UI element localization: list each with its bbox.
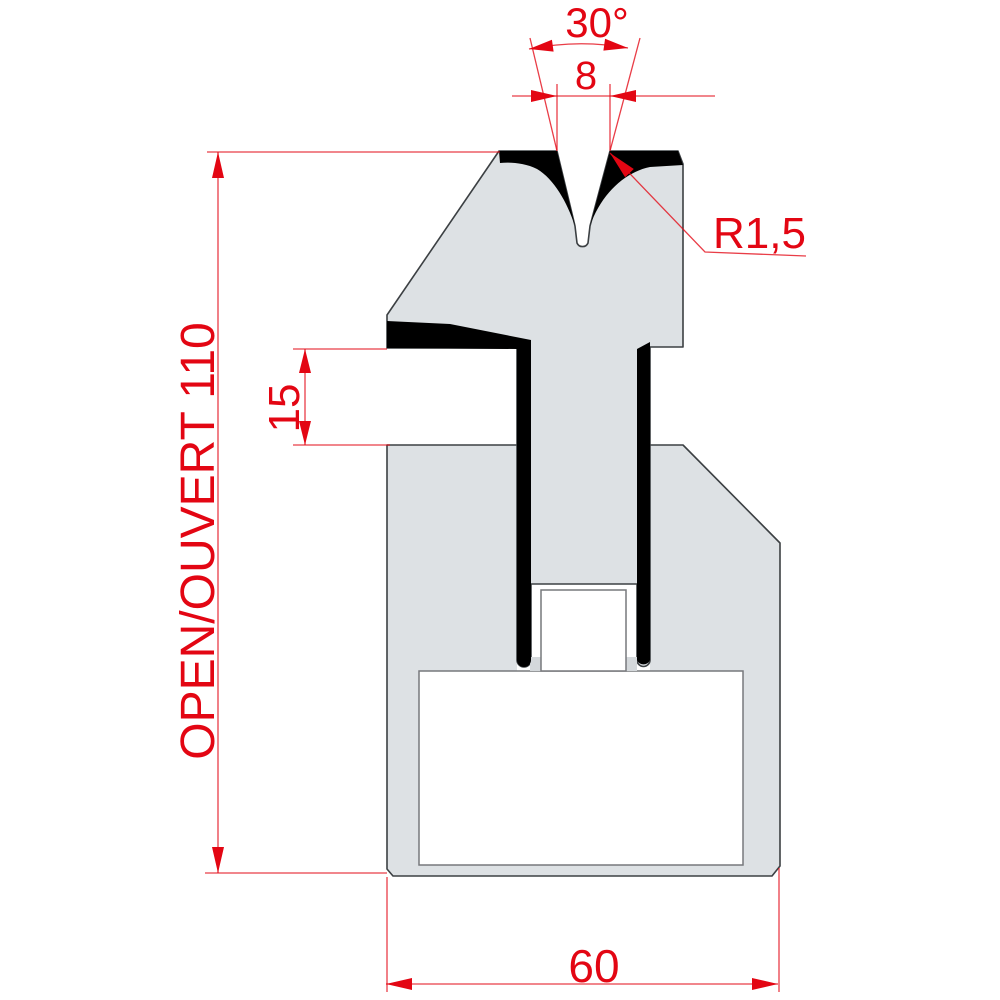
dim-60-arrow-left <box>386 978 412 990</box>
tang-pin-slot <box>541 590 626 671</box>
press-brake-die-drawing: OPEN/OUVERT 110 15 8 30° R1,5 60 <box>0 0 1000 1000</box>
dim-8-label: 8 <box>575 54 597 98</box>
technical-drawing-canvas: OPEN/OUVERT 110 15 8 30° R1,5 60 <box>0 0 1000 1000</box>
holder-window-opening <box>419 671 743 865</box>
tang-foot-left <box>530 657 541 671</box>
dim-60-arrow-right <box>752 978 778 990</box>
radius-label: R1,5 <box>713 209 806 258</box>
dim-110-arrow-bottom <box>212 847 224 873</box>
dim-60-label: 60 <box>568 940 619 992</box>
dim-15-label: 15 <box>260 384 309 433</box>
dim-15-arrow-top <box>299 349 311 373</box>
dim-30-label: 30° <box>565 0 629 46</box>
tang-foot-right <box>626 657 637 671</box>
dim-110-arrow-top <box>212 152 224 178</box>
dim-110-label: OPEN/OUVERT 110 <box>172 322 225 760</box>
coating-right-strip <box>637 342 650 664</box>
